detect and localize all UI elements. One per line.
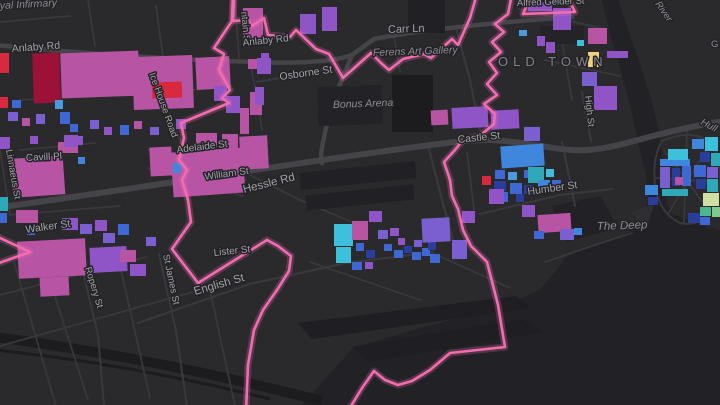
building-footprint[interactable] — [534, 231, 544, 239]
building-footprint[interactable] — [120, 250, 136, 262]
building-footprint[interactable] — [334, 224, 353, 246]
building-footprint[interactable] — [660, 167, 670, 188]
building-footprint[interactable] — [378, 230, 388, 239]
building-footprint[interactable] — [705, 137, 718, 151]
building-footprint[interactable] — [80, 224, 92, 234]
building-footprint[interactable] — [30, 136, 38, 144]
building-footprint[interactable] — [607, 51, 628, 58]
map-label-bonus-arena: Bonus Arena — [333, 97, 394, 111]
building-footprint[interactable] — [60, 112, 70, 124]
building-footprint[interactable] — [688, 213, 700, 223]
building-footprint[interactable] — [16, 210, 38, 223]
building-footprint[interactable] — [8, 112, 18, 121]
building-footprint[interactable] — [336, 247, 351, 263]
map-label-carr-ln: Carr Ln — [388, 23, 425, 36]
building-footprint[interactable] — [150, 127, 159, 135]
building-footprint[interactable] — [130, 264, 146, 276]
building-footprint[interactable] — [675, 177, 683, 185]
building-footprint[interactable] — [700, 217, 710, 225]
map-label-g: G — [711, 39, 718, 50]
building-footprint[interactable] — [394, 250, 403, 258]
map-label-cavill-pl: Cavill Pl — [26, 151, 63, 164]
building-footprint[interactable] — [703, 193, 719, 206]
building-footprint[interactable] — [711, 153, 720, 166]
building-footprint[interactable] — [365, 262, 373, 269]
building-footprint[interactable] — [60, 51, 140, 99]
building-footprint[interactable] — [0, 53, 9, 73]
building-footprint[interactable] — [712, 207, 720, 217]
building-footprint[interactable] — [546, 169, 554, 177]
building-footprint[interactable] — [694, 165, 706, 177]
building-footprint[interactable] — [120, 125, 129, 135]
building-footprint[interactable] — [560, 229, 574, 240]
building-footprint[interactable] — [660, 159, 690, 166]
building-footprint[interactable] — [366, 250, 375, 258]
building-footprint[interactable] — [522, 205, 535, 217]
building-footprint[interactable] — [369, 211, 382, 222]
building-footprint[interactable] — [662, 189, 688, 196]
building-footprint[interactable] — [78, 157, 85, 164]
building-footprint[interactable] — [574, 228, 582, 235]
map-canvas[interactable]: yal Infirmaryntain StAnlaby RdAnlaby RdI… — [0, 0, 720, 405]
building-footprint[interactable] — [404, 246, 412, 253]
building-footprint[interactable] — [40, 276, 70, 296]
building-footprint[interactable] — [0, 137, 10, 149]
building-footprint[interactable] — [594, 86, 617, 110]
building-footprint[interactable] — [707, 179, 718, 192]
building-footprint[interactable] — [431, 110, 449, 126]
building-footprint[interactable] — [645, 185, 658, 195]
building-footprint[interactable] — [32, 53, 61, 104]
building-footprint[interactable] — [255, 87, 264, 105]
building-footprint[interactable] — [682, 166, 691, 186]
building-footprint[interactable] — [546, 42, 555, 53]
building-footprint[interactable] — [500, 144, 544, 169]
building-footprint[interactable] — [707, 167, 718, 178]
building-footprint[interactable] — [17, 238, 87, 279]
building-footprint[interactable] — [421, 217, 450, 242]
building-footprint[interactable] — [692, 139, 704, 149]
building-footprint[interactable] — [428, 242, 436, 250]
building-footprint[interactable] — [146, 237, 156, 246]
building-footprint[interactable] — [103, 233, 115, 243]
building-footprint[interactable] — [577, 40, 584, 46]
building-footprint[interactable] — [510, 183, 522, 194]
building-footprint[interactable] — [700, 207, 711, 216]
map-viewport[interactable]: yal Infirmaryntain StAnlaby RdAnlaby RdI… — [0, 0, 720, 405]
building-footprint[interactable] — [149, 146, 172, 176]
building-footprint[interactable] — [537, 36, 545, 46]
building-footprint[interactable] — [0, 213, 7, 223]
building-footprint[interactable] — [0, 197, 8, 211]
building-footprint[interactable] — [495, 170, 505, 179]
building-footprint[interactable] — [352, 221, 368, 240]
building-footprint[interactable] — [489, 189, 504, 204]
map-label-old-town: OLD TOWN — [498, 54, 608, 69]
building-footprint[interactable] — [64, 135, 78, 147]
building-footprint[interactable] — [668, 149, 688, 160]
map-label-the-deep: The Deep — [597, 219, 648, 233]
building-footprint[interactable] — [412, 252, 421, 260]
building-footprint[interactable] — [451, 106, 488, 129]
building-footprint[interactable] — [70, 124, 78, 132]
building-footprint[interactable] — [582, 72, 597, 86]
building-footprint[interactable] — [384, 244, 392, 251]
building-footprint[interactable] — [36, 114, 45, 124]
building-footprint[interactable] — [134, 121, 142, 129]
building-footprint[interactable] — [516, 194, 524, 202]
building-footprint[interactable] — [118, 224, 129, 235]
building-footprint[interactable] — [356, 243, 364, 251]
building-footprint[interactable] — [700, 152, 710, 162]
building-footprint[interactable] — [257, 58, 271, 74]
building-footprint[interactable] — [104, 127, 112, 135]
building-footprint[interactable] — [508, 172, 517, 180]
building-footprint[interactable] — [55, 100, 63, 109]
building-footprint[interactable] — [430, 254, 440, 263]
building-footprint[interactable] — [95, 220, 107, 231]
dark-block — [392, 75, 433, 132]
building-footprint[interactable] — [12, 100, 21, 108]
building-footprint[interactable] — [519, 30, 527, 36]
building-footprint[interactable] — [482, 176, 491, 185]
building-footprint[interactable] — [90, 120, 99, 129]
building-footprint[interactable] — [22, 118, 30, 126]
building-footprint[interactable] — [524, 127, 540, 141]
building-footprint[interactable] — [398, 238, 405, 245]
building-footprint[interactable] — [588, 28, 607, 44]
building-footprint[interactable] — [240, 108, 249, 134]
building-footprint[interactable] — [0, 97, 8, 108]
building-footprint[interactable] — [322, 7, 337, 31]
building-footprint[interactable] — [352, 262, 362, 270]
building-footprint[interactable] — [696, 179, 706, 189]
building-footprint[interactable] — [300, 14, 316, 34]
building-footprint[interactable] — [239, 135, 269, 169]
building-footprint[interactable] — [452, 240, 467, 259]
building-footprint[interactable] — [648, 197, 658, 205]
building-footprint[interactable] — [390, 228, 399, 236]
building-footprint[interactable] — [414, 240, 422, 247]
